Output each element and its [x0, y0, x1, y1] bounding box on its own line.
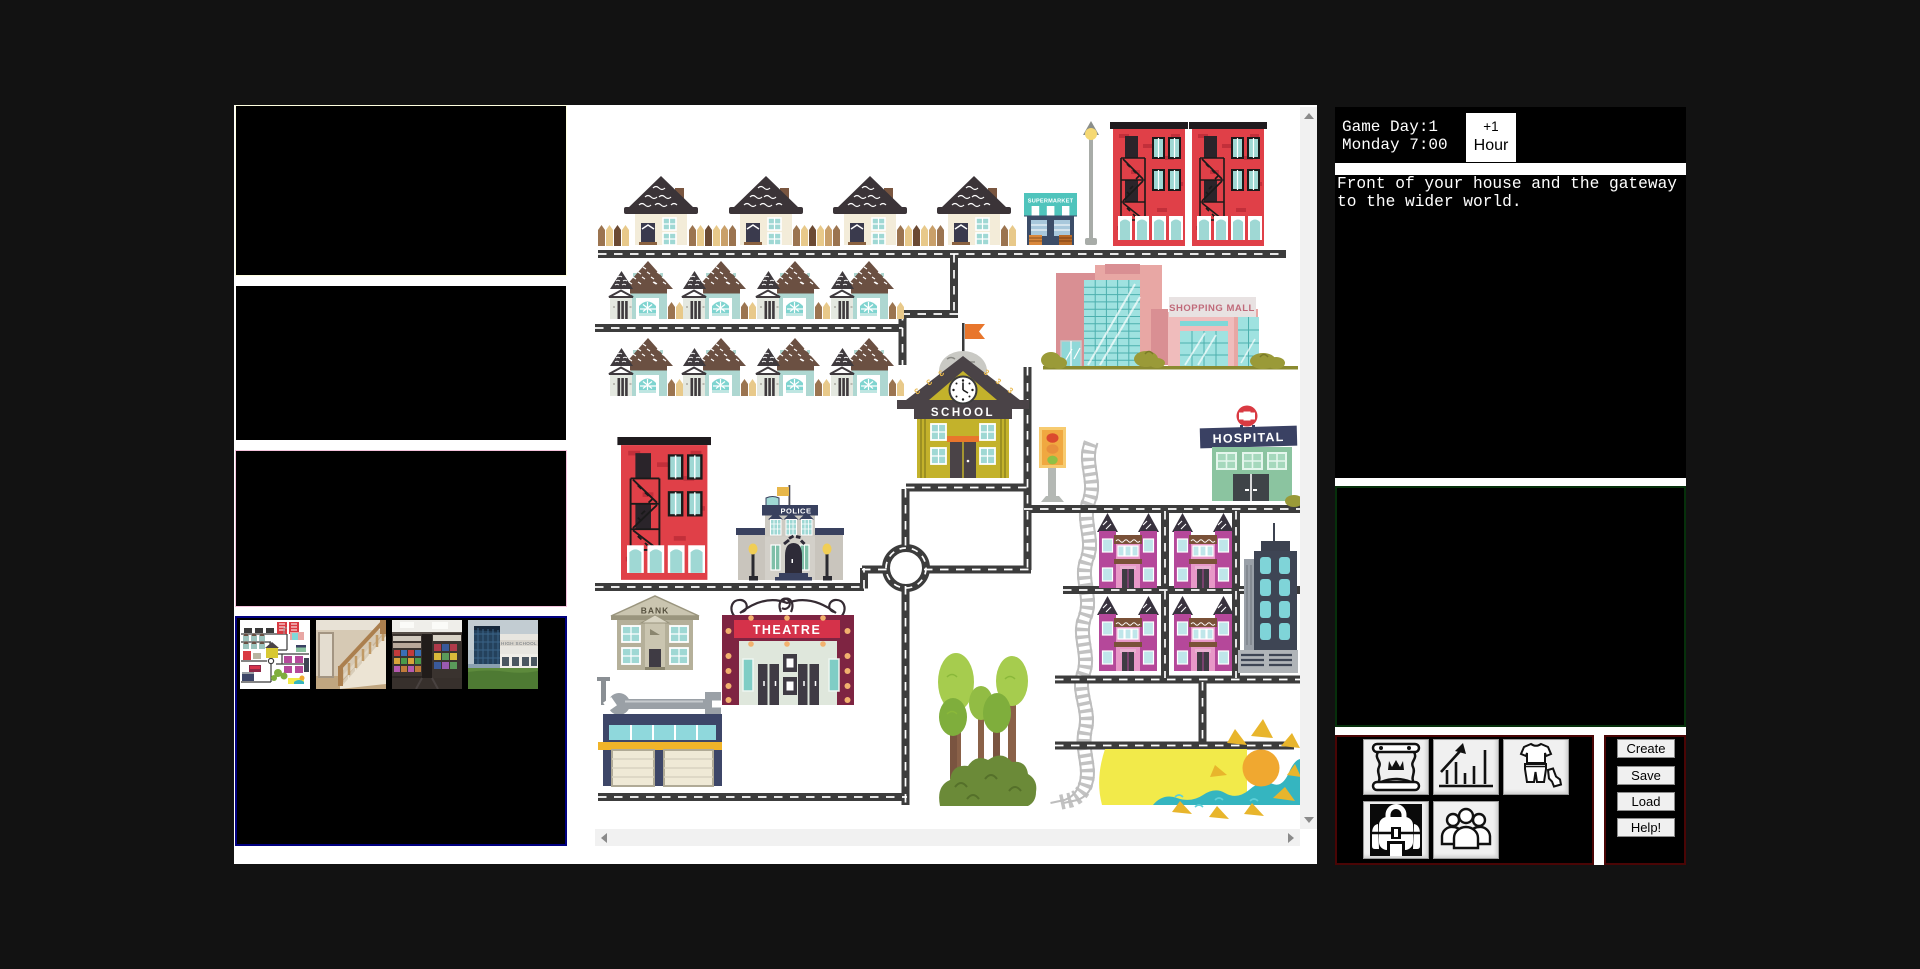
- svg-text:SUPERMARKET: SUPERMARKET: [1028, 199, 1074, 205]
- svg-text:SHOPPING MALL: SHOPPING MALL: [1169, 303, 1255, 314]
- svg-text:HIGH SCHOOL: HIGH SCHOOL: [501, 641, 537, 646]
- svg-text:HOSPITAL: HOSPITAL: [1212, 430, 1284, 446]
- svg-text:SCHOOL: SCHOOL: [931, 407, 995, 419]
- svg-text:THEATRE: THEATRE: [753, 623, 822, 637]
- svg-text:BANK: BANK: [641, 606, 670, 616]
